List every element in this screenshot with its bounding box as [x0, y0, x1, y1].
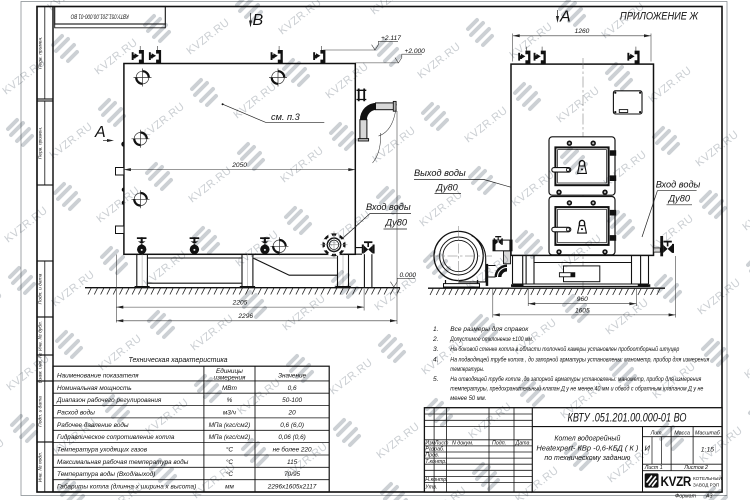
svg-text:Пров.: Пров.	[425, 453, 439, 459]
svg-text:МВт: МВт	[222, 385, 238, 392]
svg-text:Т.контр.: Т.контр.	[425, 459, 446, 465]
svg-text:мм: мм	[225, 484, 234, 491]
svg-text:0,6: 0,6	[288, 385, 297, 392]
svg-text:2296х1605х2117: 2296х1605х2117	[267, 484, 317, 491]
svg-text:0,6 (6,0): 0,6 (6,0)	[280, 422, 304, 429]
svg-text:5.: 5.	[433, 376, 439, 383]
svg-text:КВТУ .051.201.00.000-01 ВО: КВТУ .051.201.00.000-01 ВО	[568, 411, 687, 425]
svg-text:°С: °С	[226, 446, 234, 454]
svg-text:+2.000: +2.000	[405, 48, 426, 55]
svg-text:3.: 3.	[433, 346, 439, 353]
svg-text:Котел водогрейный: Котел водогрейный	[554, 433, 621, 442]
svg-text:1260: 1260	[575, 28, 590, 35]
svg-text:Перв. примен.: Перв. примен.	[38, 127, 44, 160]
svg-text:Н.контр.: Н.контр.	[425, 477, 447, 483]
svg-text:Наименование показателя: Наименование показателя	[57, 373, 139, 380]
svg-text:N докум.: N докум.	[452, 440, 473, 446]
svg-text:0,06 (0,6): 0,06 (0,6)	[278, 434, 305, 441]
svg-text:2.: 2.	[432, 336, 439, 343]
svg-text:50-100: 50-100	[282, 397, 302, 404]
svg-text:МПа (кгс/см2): МПа (кгс/см2)	[209, 422, 251, 429]
svg-text:Дата: Дата	[515, 440, 530, 446]
svg-text:Подп. и дата: Подп. и дата	[38, 273, 44, 304]
svg-text:Лист 1: Лист 1	[644, 465, 663, 471]
svg-text:Лист: Лист	[434, 440, 449, 446]
svg-text:Ду80: Ду80	[385, 218, 408, 228]
svg-text:Подп. и дата: Подп. и дата	[38, 396, 44, 427]
svg-text:КВТУ.051.201.00.000-01 ВО: КВТУ.051.201.00.000-01 ВО	[71, 13, 129, 20]
svg-text:Техническая характеристика: Техническая характеристика	[128, 357, 227, 364]
svg-text:Номинальная мощность: Номинальная мощность	[57, 385, 132, 392]
svg-text:2050: 2050	[231, 162, 247, 169]
svg-text:Разраб.: Разраб.	[425, 447, 444, 453]
svg-text:KVZR: KVZR	[661, 474, 692, 489]
svg-text:МПа (кгс/см2): МПа (кгс/см2)	[209, 434, 251, 441]
svg-text:Масштаб: Масштаб	[695, 431, 721, 437]
svg-text:Расход воды: Расход воды	[57, 409, 95, 417]
svg-text:Максимальная рабочая температу: Максимальная рабочая температура воды	[57, 458, 189, 466]
svg-text:На подводящей трубе котла ,: На подводящей трубе котла , до запорной …	[450, 355, 709, 363]
svg-text:см. п.3: см. п.3	[271, 112, 301, 122]
svg-text:%: %	[227, 397, 233, 404]
svg-text:1.: 1.	[433, 326, 439, 333]
svg-text:Листов 2: Листов 2	[683, 465, 708, 471]
svg-text:Вход воды: Вход воды	[656, 179, 701, 189]
svg-text:м3/ч: м3/ч	[223, 410, 237, 417]
svg-text:измерения: измерения	[213, 374, 246, 381]
svg-text:Формат: Формат	[675, 494, 697, 500]
svg-text:На боковой стенке котла в обла: На боковой стенке котла в области топочн…	[450, 345, 679, 353]
svg-text:Инв. № подл.: Инв. № подл.	[38, 452, 44, 482]
svg-text:Выход воды: Выход воды	[414, 168, 466, 178]
svg-text:Ду80: Ду80	[668, 194, 691, 204]
svg-text:КОТЕЛЬНЫЙ: КОТЕЛЬНЫЙ	[693, 474, 722, 481]
svg-text:температуры.: температуры.	[450, 366, 484, 373]
svg-text:А: А	[94, 124, 106, 141]
svg-text:Подп.: Подп.	[492, 440, 506, 446]
svg-text:Утв.: Утв.	[425, 484, 437, 490]
svg-text:Температура воды (Вход/выход): Температура воды (Вход/выход)	[57, 470, 155, 478]
svg-text:20: 20	[288, 410, 297, 417]
svg-text:менее 50 мм.: менее 50 мм.	[450, 395, 486, 402]
svg-text:Инв. № дубл.: Инв. № дубл.	[38, 321, 44, 351]
